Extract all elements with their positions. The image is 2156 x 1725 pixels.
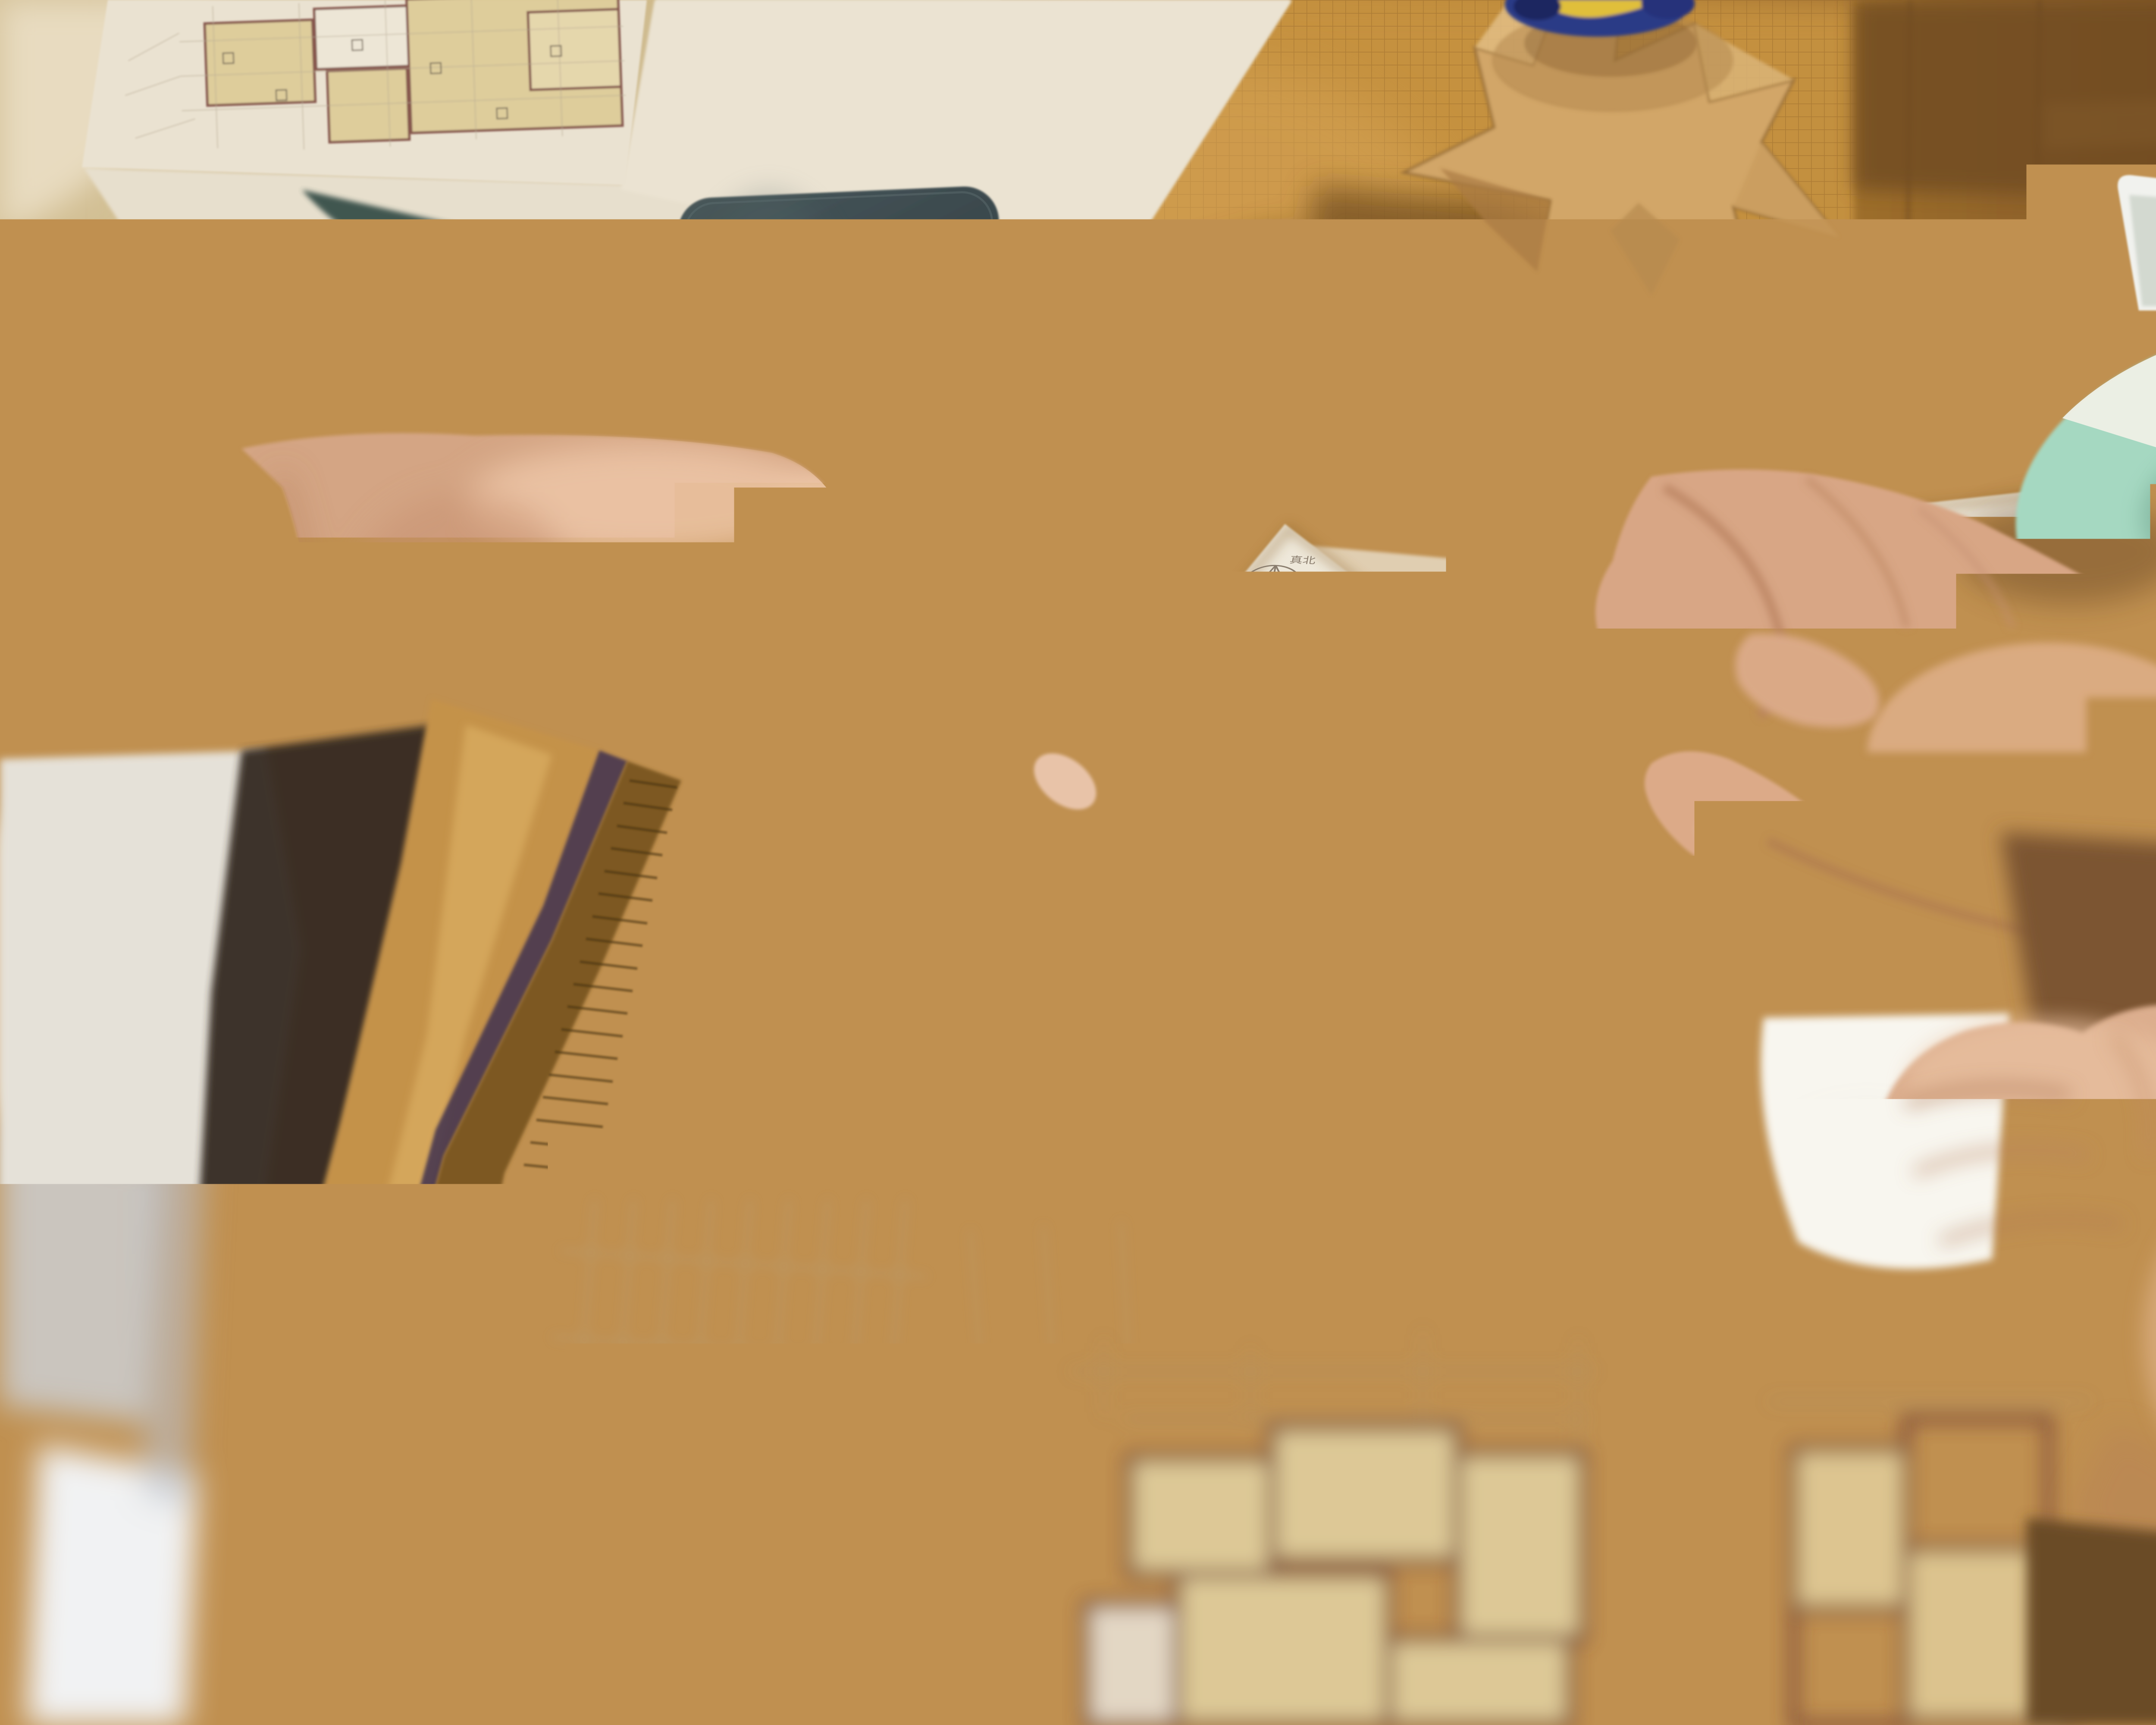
svg-text:4145: 4145 [1118,643,1163,659]
svg-text:飾: 飾 [1499,1033,1511,1041]
svg-text:棚: 棚 [1497,1049,1508,1057]
svg-text:ガレージ: ガレージ [1153,847,1177,900]
svg-text:チ: チ [1547,961,1564,973]
svg-text:ラ: ラ [1511,1042,1523,1050]
svg-text:ー: ー [1485,1041,1497,1049]
svg-text:マ: マ [1486,1033,1498,1041]
svg-text:納戸: 納戸 [1332,798,1374,814]
svg-text:1770: 1770 [1278,647,1314,660]
svg-text:5915: 5915 [1331,618,1374,634]
svg-text:ウ: ウ [1482,1057,1494,1065]
svg-text:の: の [1382,1032,1394,1041]
svg-text:1820: 1820 [1183,1183,1219,1196]
svg-text:ッ: ッ [1549,950,1566,962]
svg-text:り: り [1498,1041,1510,1050]
svg-text:ン: ン [1545,972,1562,985]
svg-text:ガ: ガ [1512,1034,1524,1042]
svg-text:玄関: 玄関 [1232,997,1266,1010]
svg-text:トイレ: トイレ [1476,753,1512,762]
svg-text:910: 910 [1385,650,1413,663]
svg-text:910: 910 [1312,1187,1340,1200]
svg-text:ご: ご [1387,1009,1399,1017]
svg-text:3640: 3640 [1683,1082,1704,1107]
svg-text:ロ: ロ [1484,1049,1495,1057]
svg-text:洗面: 洗面 [1564,857,1602,873]
svg-text:家: 家 [1384,1025,1396,1033]
svg-text:キ: キ [1551,938,1568,950]
svg-text:堂: 堂 [1612,1070,1632,1084]
svg-text:2730: 2730 [1045,1179,1081,1192]
svg-text:実: 実 [1385,1017,1397,1025]
svg-text:ス: ス [1510,1050,1521,1058]
svg-text:食: 食 [1614,1057,1634,1071]
svg-text:真北: 真北 [1289,555,1316,566]
svg-text:1820: 1820 [1467,652,1504,666]
svg-text:入: 入 [1508,1057,1520,1066]
svg-text:柱: 柱 [1381,1040,1393,1048]
svg-text:工具入れ: 工具入れ [1263,866,1317,878]
